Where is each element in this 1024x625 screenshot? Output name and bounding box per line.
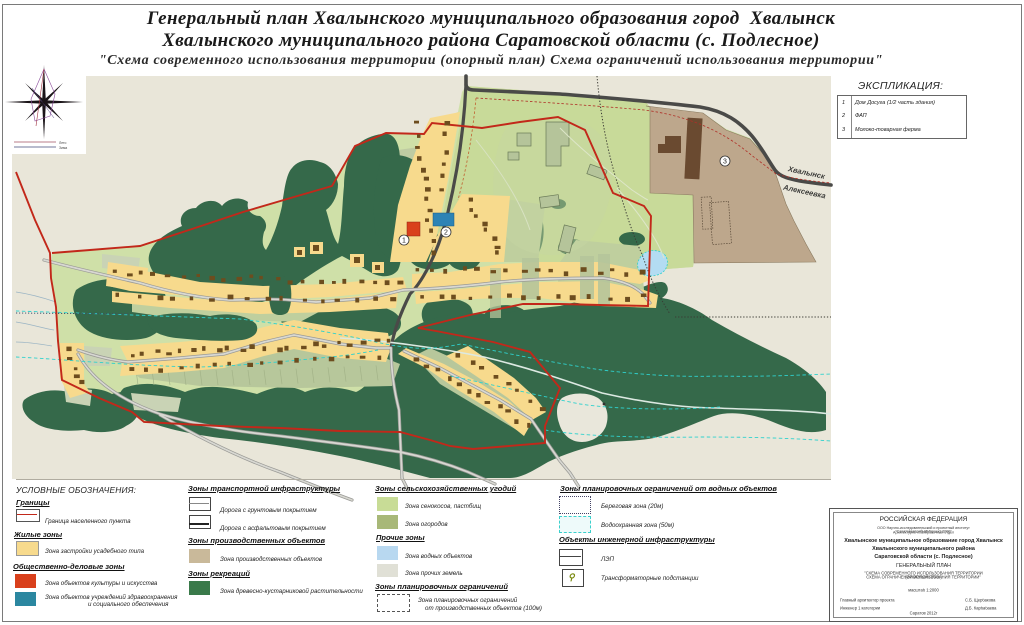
- svg-text:2: 2: [444, 230, 448, 237]
- svg-text:Лето: Лето: [59, 141, 67, 145]
- svg-text:1: 1: [402, 238, 406, 245]
- svg-text:3: 3: [723, 159, 727, 166]
- svg-text:Зима: Зима: [59, 146, 67, 150]
